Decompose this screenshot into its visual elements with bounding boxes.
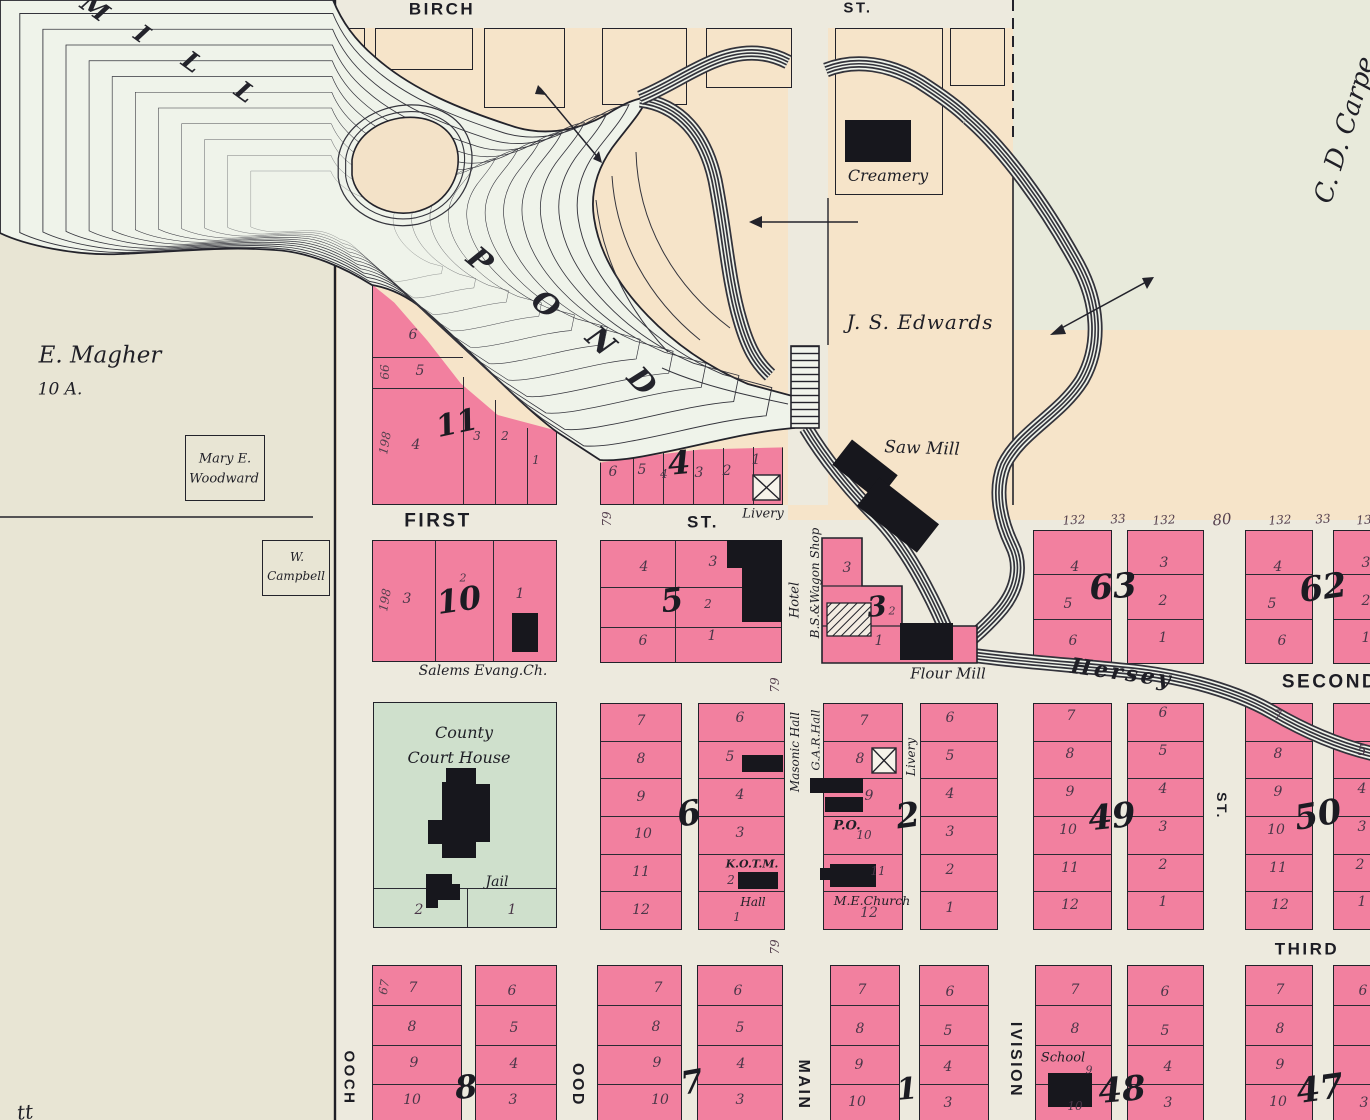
lot-number: 9 [637, 790, 646, 804]
lot-number: 10 [1269, 1095, 1287, 1109]
owner-campbell-line1: W. [290, 551, 304, 563]
lot-number: 12 [1061, 898, 1079, 912]
hotel-building [727, 540, 782, 622]
lot-number: 5 [1358, 744, 1367, 758]
lot-number: 12 [632, 903, 650, 917]
lot-number: 6 [734, 984, 743, 998]
dim-33-b: 33 [1315, 512, 1331, 525]
lot-number: 7 [654, 981, 663, 995]
lot-number: 9 [653, 1056, 662, 1070]
dim-79-third: 79 [769, 939, 781, 954]
lot-number: 5 [510, 1021, 519, 1035]
street-label-wood: OOD [569, 1063, 585, 1107]
lot-number: 1 [946, 901, 955, 915]
lot-number: 4 [412, 438, 421, 452]
plat-map: BIRCH ST. FIRST ST. SECOND THIRD MAIN OO… [0, 0, 1370, 1120]
lot-number: 9 [410, 1056, 419, 1070]
lot-number: 11 [632, 865, 650, 879]
lot-number: 12 [1271, 898, 1289, 912]
lot-number: 7 [1276, 983, 1285, 997]
lot-number: 5 [1161, 1024, 1170, 1038]
dim-79-first: 79 [601, 511, 613, 526]
lot-number: 7 [637, 714, 646, 728]
lot-number: 7 [858, 983, 867, 997]
lot-number: 4 [1358, 782, 1367, 796]
lot-number: 6 [946, 711, 955, 725]
lot-number: 6 [1278, 634, 1287, 648]
lot-number: 3 [709, 555, 718, 569]
lot-number: 11 [870, 865, 885, 877]
lot-number: 4 [660, 468, 668, 480]
lot-number: 8 [1066, 747, 1075, 761]
dim-79-mid: 79 [769, 677, 781, 692]
lot-number: 6 [639, 634, 648, 648]
lot-number: 10 [634, 827, 652, 841]
street-label-first: FIRST [404, 512, 471, 531]
jail-label: Jail [486, 875, 509, 889]
lot-number: 8 [856, 752, 865, 766]
lot-number: 5 [736, 1021, 745, 1035]
lot-number: 12 [860, 906, 878, 920]
lot-number: 4 [944, 1060, 953, 1074]
lot-number: 1 [875, 634, 884, 648]
lot-number: 10 [403, 1093, 421, 1107]
lot-number: 3 [509, 1093, 518, 1107]
hotel-label: Hotel [789, 582, 802, 618]
lot-number: 6 [609, 465, 618, 479]
lot-number: 3 [1160, 556, 1169, 570]
owner-edwards: J. S. Edwards [847, 312, 994, 332]
owner-woodward-line1: Mary E. [199, 453, 251, 466]
lot-number: 2 [501, 430, 509, 442]
lot-number: 3 [1362, 556, 1370, 570]
lot-number: 2 [1159, 594, 1168, 608]
lot-number: 4 [946, 787, 955, 801]
lot-number: 4 [1274, 560, 1283, 574]
lot-number: 9 [855, 1058, 864, 1072]
lot-number: 5 [416, 364, 425, 378]
lot-number: 2 [415, 903, 424, 917]
block-number-1: 1 [895, 1074, 918, 1106]
salems-church-label: Salems Evang.Ch. [419, 664, 548, 678]
hatched-building [827, 603, 871, 636]
lot-number: 9 [865, 789, 874, 803]
courthouse-label-line2: Court House [408, 750, 511, 766]
lot-number: 5 [946, 749, 955, 763]
lot-number: 5 [726, 750, 735, 764]
lot-number: 10 [856, 829, 871, 841]
lot-number: 4 [510, 1057, 519, 1071]
dim-66: 66 [379, 364, 391, 379]
kotm-hall-label: Hall [740, 896, 765, 908]
gar-hall-label: G.A.R.Hall [810, 710, 822, 771]
lot-number: 3 [736, 1093, 745, 1107]
block-number-63: 63 [1088, 568, 1138, 605]
lot-number: 5 [1268, 597, 1277, 611]
block-number-5: 5 [659, 583, 686, 618]
flour-mill-label: Flour Mill [910, 667, 986, 682]
lot-number: 5 [638, 463, 647, 477]
livery-label-block4: Livery [742, 508, 783, 521]
owner-magher: E. Magher [39, 345, 162, 368]
lot-number: 1 [508, 903, 517, 917]
block-number-49: 49 [1087, 798, 1138, 837]
lot-number: 2 [946, 863, 955, 877]
lot-number: 2 [1356, 858, 1365, 872]
lot-number: 4 [1164, 1060, 1173, 1074]
lot-number: 6 [1161, 985, 1170, 999]
block-number-3: 3 [866, 592, 888, 622]
block-number-10: 10 [435, 581, 484, 619]
lot-number: 8 [637, 752, 646, 766]
lot-number: 10 [1059, 823, 1077, 837]
dim-132-b: 132 [1152, 513, 1176, 527]
kotm-hall-building [738, 872, 778, 889]
block-number-4: 4 [667, 446, 692, 480]
kotm-label: K.O.T.M. [726, 859, 779, 870]
street-label-birch: BIRCH [409, 1, 475, 18]
street-label-main: MAIN [795, 1060, 811, 1111]
owner-woodward-line2: Woodward [189, 473, 259, 486]
school-label: School [1041, 1052, 1085, 1065]
street-label-mid-st: ST. [1215, 792, 1229, 820]
lot-number: 1 [1362, 631, 1370, 645]
lot-number: 4 [736, 788, 745, 802]
lot-number: 7 [1071, 983, 1080, 997]
lot-number: 6 [409, 328, 418, 342]
lot-number: 2 [889, 606, 896, 617]
block-number-62: 62 [1297, 568, 1349, 608]
street-label-division: IVISION [1007, 1022, 1023, 1098]
block-number-50: 50 [1292, 794, 1345, 836]
lot-number: 3 [944, 1096, 953, 1110]
gar-hall-building-1 [810, 778, 863, 793]
lot-number: 2 [460, 573, 467, 584]
dim-198-b: 198 [377, 588, 393, 613]
lot-number: 3 [843, 561, 852, 575]
mill-pond [0, 0, 800, 460]
lot-number: 9 [1274, 785, 1283, 799]
lot-number: 4 [1071, 560, 1080, 574]
lot-number: 7 [409, 981, 418, 995]
lot-number: 5 [944, 1024, 953, 1038]
lot-number: 8 [1071, 1022, 1080, 1036]
me-church-steeple [820, 868, 830, 880]
lot-number: 1 [1159, 895, 1168, 909]
street-label-birch-st: ST. [843, 1, 872, 16]
street-label-second: SECOND [1282, 673, 1370, 692]
dim-13-partial: 13 [1356, 513, 1370, 526]
lot-number: 2 [1362, 594, 1370, 608]
livery-symbol-block4 [753, 475, 780, 500]
lot-number: 7 [1067, 709, 1076, 723]
street-label-first-st: ST. [687, 514, 719, 531]
corner-name-fragment: tt [16, 1101, 34, 1120]
flour-mill-building [900, 623, 953, 660]
courthouse-building [428, 768, 490, 858]
lot-number: 4 [1159, 782, 1168, 796]
lot-number: 2 [704, 598, 712, 610]
me-church-building [830, 864, 876, 887]
dim-33-a: 33 [1110, 512, 1126, 525]
lot-number: 1 [532, 454, 540, 466]
lot-number: 6 [508, 984, 517, 998]
lot-number: 10 [1267, 823, 1285, 837]
masonic-hall-building [742, 755, 783, 772]
owner-campbell-line2: Campbell [267, 570, 325, 582]
creamery-building [845, 120, 911, 162]
dim-80: 80 [1212, 512, 1233, 529]
lot-number: 3 [1360, 1096, 1369, 1110]
lot-number: 1 [1159, 631, 1168, 645]
lot-number: 6 [1359, 984, 1368, 998]
lot-number: 5 [1064, 597, 1073, 611]
lot-number: 1 [708, 629, 717, 643]
lot-number: 2 [1159, 858, 1168, 872]
lot-number: 9 [1086, 1065, 1093, 1076]
lot-number: 3 [1164, 1096, 1173, 1110]
dam-crossing [791, 346, 819, 428]
masonic-hall-label: Masonic Hall [789, 712, 801, 792]
lot-number: 10 [1067, 1100, 1082, 1112]
lot-number: 9 [1066, 785, 1075, 799]
block-number-8: 8 [453, 1070, 478, 1104]
lot-number: 2 [723, 464, 732, 478]
lot-number: 8 [408, 1020, 417, 1034]
lot-number: 4 [640, 560, 649, 574]
lot-number: 3 [946, 825, 955, 839]
creamery-label: Creamery [848, 168, 928, 184]
lot-number: 1 [752, 453, 761, 467]
saw-mill-label: Saw Mill [884, 439, 960, 459]
lot-number: 1 [516, 587, 525, 601]
block-number-48: 48 [1097, 1071, 1147, 1109]
lot-number: 8 [1276, 1022, 1285, 1036]
wagon-shop-label: B.S.&Wagon Shop [809, 528, 821, 639]
lot-number: 6 [736, 711, 745, 725]
lot-number: 3 [473, 430, 481, 442]
courthouse-label-line1: County [435, 725, 493, 741]
livery-symbol-block2 [872, 748, 896, 773]
lot-number: 10 [848, 1095, 866, 1109]
lot-number: 7 [860, 714, 869, 728]
livery-label-block2: Livery [905, 738, 917, 776]
block-number-47: 47 [1294, 1069, 1346, 1109]
dim-132-a: 132 [1062, 513, 1086, 527]
salems-church-building [512, 613, 538, 652]
lot-number: 3 [1159, 820, 1168, 834]
street-label-west: OOCH [342, 1051, 357, 1106]
dim-67: 67 [377, 978, 391, 995]
lot-number: 3 [736, 826, 745, 840]
lot-number: 3 [695, 466, 704, 480]
lot-number: 5 [1159, 744, 1168, 758]
jail-building [426, 874, 460, 908]
dim-198-a: 198 [377, 431, 393, 456]
lot-number: 3 [403, 592, 412, 606]
dim-132-c: 132 [1268, 513, 1292, 527]
lot-number: 8 [1274, 747, 1283, 761]
owner-magher-acres: 10 A. [38, 382, 83, 399]
lot-number: 3 [1358, 820, 1367, 834]
lot-number: 7 [1274, 709, 1283, 723]
lot-number: 9 [1276, 1058, 1285, 1072]
lot-number: 11 [1269, 861, 1287, 875]
lot-number: 4 [737, 1057, 746, 1071]
lot-number: 2 [727, 874, 735, 886]
lot-number: 8 [652, 1020, 661, 1034]
block-number-2: 2 [894, 798, 922, 835]
lot-number: 10 [651, 1093, 669, 1107]
lot-number: 6 [1159, 706, 1168, 720]
gar-hall-building-2 [825, 797, 863, 812]
street-label-third: THIRD [1275, 941, 1339, 958]
lot-number: 11 [1061, 861, 1079, 875]
lot-number: 8 [856, 1022, 865, 1036]
lot-number: 1 [1358, 895, 1367, 909]
lot-number: 6 [946, 985, 955, 999]
lot-number: 6 [1069, 634, 1078, 648]
lot-number: 1 [733, 911, 741, 923]
